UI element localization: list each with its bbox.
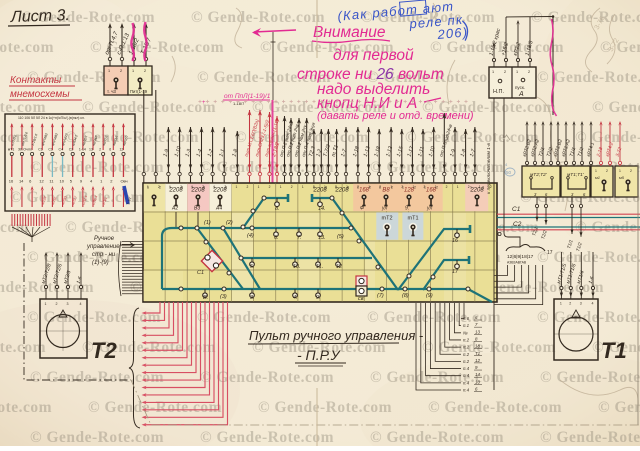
svg-text:© Gende-Rote.com: © Gende-Rote.com: [531, 9, 640, 26]
svg-text:© Gende-Rote.com: © Gende-Rote.com: [370, 429, 504, 446]
svg-text:А: А: [518, 91, 524, 98]
svg-text:1: 1: [346, 185, 348, 189]
svg-text:+: +: [202, 100, 206, 106]
svg-text:13.: 13.: [318, 235, 326, 241]
svg-text:2: 2: [424, 185, 426, 189]
svg-text:(5): (5): [337, 234, 344, 240]
svg-text:© Gende-Rote.com: © Gende-Rote.com: [537, 69, 640, 86]
svg-text:Внимание: Внимание: [313, 24, 386, 41]
svg-text:мнемосхемы: мнемосхемы: [10, 89, 70, 100]
svg-text:2: 2: [56, 302, 58, 306]
svg-text:7.: 7.: [297, 235, 302, 241]
svg-text:© Gende-Rote.com: © Gende-Rote.com: [367, 309, 501, 326]
svg-text:11.: 11.: [316, 264, 323, 270]
svg-text:св: св: [358, 296, 364, 302]
svg-text:2: 2: [313, 185, 315, 189]
svg-text:17: 17: [452, 269, 459, 275]
svg-text:1: 1: [516, 70, 518, 74]
svg-text:Т1: Т1: [475, 351, 481, 356]
svg-text:(1): (1): [204, 220, 211, 226]
svg-text:© Gende-Rote.com: © Gende-Rote.com: [30, 369, 164, 386]
svg-text:1: 1: [413, 185, 415, 189]
svg-text:1: 1: [132, 69, 134, 73]
svg-text:12: 12: [475, 358, 480, 363]
svg-text:пуск.: пуск.: [515, 85, 525, 90]
svg-text:1: 1: [619, 169, 621, 173]
svg-text:управление: управление: [86, 244, 120, 250]
svg-text:© Gende-Rote.com: © Gende-Rote.com: [27, 309, 161, 326]
svg-text:12: 12: [39, 179, 44, 184]
svg-text:С4: С4: [59, 148, 64, 152]
svg-text:© Gende-Rote.com: © Gende-Rote.com: [575, 129, 640, 146]
svg-text:стр - ни: стр - ни: [92, 252, 116, 258]
svg-text:Пульт ручного управления -: Пульт ручного управления -: [249, 328, 424, 343]
svg-text:© Gende-Rote.com: © Gende-Rote.com: [88, 399, 222, 416]
svg-text:1: 1: [595, 169, 597, 173]
svg-text:С1: С1: [38, 148, 43, 152]
svg-text:12: 12: [119, 148, 123, 152]
svg-text:1: 1: [368, 185, 370, 189]
svg-text:Овч: Овч: [120, 179, 127, 184]
svg-text:Ф: Ф: [360, 206, 364, 212]
svg-text:2: 2: [224, 185, 226, 189]
svg-text:п.4: п.4: [463, 380, 470, 385]
svg-text:В8: В8: [382, 188, 390, 194]
svg-text:1: 1: [470, 186, 472, 190]
svg-text:мТ1: мТ1: [8, 148, 15, 152]
svg-text:п.2: п.2: [463, 352, 470, 357]
svg-text:п.4: п.4: [463, 388, 470, 393]
svg-text:16: 16: [452, 238, 459, 244]
svg-text:© Gende-Rote.com: © Gende-Rote.com: [370, 369, 504, 386]
svg-text:13: 13: [89, 148, 93, 152]
svg-text:1: 1: [492, 70, 494, 74]
svg-text:© Gende-Rote.com: © Gende-Rote.com: [598, 399, 640, 416]
svg-text:2: 2: [504, 70, 506, 74]
svg-text:№: №: [463, 330, 468, 335]
svg-text:5.: 5.: [250, 264, 255, 270]
svg-text:(8): (8): [402, 293, 409, 299]
svg-text:4: 4: [80, 302, 82, 306]
svg-text:6: 6: [109, 148, 111, 152]
svg-text:© Gende-Rote.com: © Gende-Rote.com: [428, 399, 562, 416]
svg-text:© Gende-Rote.com: © Gende-Rote.com: [0, 339, 46, 356]
svg-text:50: 50: [506, 170, 512, 175]
svg-text:2: 2: [291, 185, 293, 189]
svg-text:1: 1: [302, 185, 304, 189]
svg-text:1: 1: [169, 185, 171, 189]
svg-text:В3: В3: [194, 206, 200, 212]
svg-text:10: 10: [60, 179, 65, 184]
svg-text:А2: А2: [171, 206, 178, 212]
svg-text:© Gende-Rote.com: © Gende-Rote.com: [200, 429, 334, 446]
svg-text:12: 12: [336, 264, 342, 270]
svg-text:4.: 4.: [293, 295, 298, 301]
svg-text:С1: С1: [512, 206, 521, 213]
svg-text:ул: ул: [426, 206, 432, 212]
svg-text:п.6: п.6: [463, 316, 470, 321]
svg-text:- П.Р.У: - П.Р.У: [297, 347, 342, 363]
svg-text:АЗВЗАВГАВ: АЗВЗАВГАВ: [507, 261, 527, 265]
svg-text:© Gende-Rote.com: © Gende-Rote.com: [592, 99, 640, 116]
svg-text:Т1: Т1: [601, 338, 627, 363]
svg-text:п.1: п.1: [463, 323, 470, 328]
svg-text:к переключателям 1-в: к переключателям 1-в: [486, 143, 492, 194]
svg-text:2: 2: [630, 169, 632, 173]
svg-text:2: 2: [446, 185, 448, 189]
svg-text:110 106 5Л 5Л 24 в 1к(+п)/сП/с: 110 106 5Л 5Л 24 в 1к(+п)/сП/с/(-)в(нкл)…: [18, 116, 85, 120]
svg-text:13: 13: [475, 329, 480, 334]
svg-text:16: 16: [9, 179, 14, 184]
svg-text:2: 2: [357, 185, 359, 189]
svg-text:1: 1: [191, 185, 193, 189]
svg-text:2: 2: [120, 69, 122, 73]
svg-text:т. ч3: т. ч3: [107, 89, 116, 94]
svg-text:Лист 3.: Лист 3.: [10, 7, 71, 26]
svg-text:© Gende-Rote.com: © Gende-Rote.com: [200, 369, 334, 386]
svg-text:1: 1: [213, 185, 215, 189]
svg-text:14: 14: [19, 179, 24, 184]
svg-text:14.: 14.: [318, 206, 326, 212]
svg-text:2: 2: [335, 185, 337, 189]
svg-text:2: 2: [401, 185, 403, 189]
svg-text:© Gende-Rote.com: © Gende-Rote.com: [405, 129, 539, 146]
svg-text:6.: 6.: [274, 235, 279, 241]
svg-text:2: 2: [144, 69, 146, 73]
svg-text:8.: 8.: [275, 206, 280, 212]
svg-text:Н.П.: Н.П.: [493, 89, 504, 95]
svg-text:м1: м1: [595, 175, 600, 180]
svg-text:1: 1: [560, 302, 562, 306]
svg-text:18: 18: [475, 344, 480, 349]
svg-text:1: 1: [236, 185, 238, 189]
svg-text:1-14: 1-14: [79, 148, 86, 152]
svg-text:1: 1: [324, 185, 326, 189]
svg-text:Ручное: Ручное: [94, 236, 115, 242]
svg-text:© Gende-Rote.com: © Gende-Rote.com: [258, 399, 392, 416]
svg-text:© Gende-Rote.com: © Gende-Rote.com: [540, 429, 640, 446]
svg-text:2: 2: [606, 169, 608, 173]
svg-text:для первой: для первой: [333, 47, 414, 64]
svg-text:© Gende-Rote.com: © Gende-Rote.com: [0, 399, 52, 416]
svg-text:2: 2: [99, 148, 101, 152]
svg-text:12|6|9|18|17: 12|6|9|18|17: [507, 254, 534, 260]
svg-text:(давать реле и отд. времени): (давать реле и отд. времени): [317, 110, 474, 122]
svg-text:1: 1: [45, 302, 47, 306]
svg-text:С1: С1: [48, 148, 53, 152]
svg-text:2: 2: [269, 185, 271, 189]
svg-text:1: 1: [435, 185, 437, 189]
svg-text:ул: ул: [381, 206, 387, 212]
svg-text:п.2: п.2: [463, 359, 470, 364]
svg-text:1: 1: [457, 185, 459, 189]
svg-text:9.: 9.: [405, 206, 409, 212]
svg-text:© Gende-Rote.com: © Gende-Rote.com: [537, 309, 640, 326]
svg-text:м5: м5: [619, 175, 625, 180]
svg-text:1: 1: [479, 185, 481, 189]
svg-text:© Gende-Rote.com: © Gende-Rote.com: [191, 9, 325, 26]
svg-text:В.: В.: [203, 295, 208, 301]
svg-text:206): 206): [436, 24, 469, 42]
svg-text:ЗЛ.Оч: ЗЛ.Оч: [18, 148, 28, 152]
svg-text:п.2: п.2: [463, 345, 470, 350]
svg-text:© Gende-Rote.com: © Gende-Rote.com: [0, 39, 54, 56]
svg-text:1: 1: [258, 185, 260, 189]
svg-text:(2): (2): [226, 220, 233, 226]
svg-text:(4): (4): [247, 233, 254, 239]
svg-text:2: 2: [202, 185, 204, 189]
svg-text:© Gende-Rote.com: © Gende-Rote.com: [197, 309, 331, 326]
svg-text:(7): (7): [377, 293, 384, 299]
svg-text:п.4: п.4: [463, 366, 470, 371]
svg-text:2: 2: [569, 302, 571, 306]
svg-text:mТ2: mТ2: [382, 216, 393, 222]
svg-text:3: 3: [67, 302, 69, 306]
svg-text:Т2: Т2: [91, 338, 117, 363]
svg-text:(1)-(9): (1)-(9): [92, 260, 109, 266]
svg-text:1: 1: [108, 69, 110, 73]
svg-text:9.: 9.: [316, 295, 321, 301]
svg-text:2: 2: [180, 185, 182, 189]
svg-text:п.2: п.2: [463, 337, 470, 342]
svg-text:17: 17: [547, 250, 553, 256]
svg-text:С1: С1: [197, 270, 204, 276]
svg-text:1: 1: [147, 185, 149, 189]
svg-text:(9): (9): [426, 293, 433, 299]
svg-text:Контакты: Контакты: [10, 75, 62, 86]
svg-text:2: 2: [528, 70, 530, 74]
svg-text:2: 2: [379, 185, 381, 189]
svg-text:© Gende-Rote.com: © Gende-Rote.com: [422, 339, 556, 356]
svg-text:3: 3: [580, 302, 582, 306]
svg-text:А4: А4: [215, 206, 222, 212]
svg-text:10.: 10.: [293, 264, 301, 270]
svg-text:(3): (3): [220, 294, 227, 300]
svg-text:3.: 3.: [250, 295, 255, 301]
svg-text:2: 2: [247, 185, 249, 189]
svg-text:mТ1: mТ1: [408, 216, 419, 222]
svg-text:10: 10: [475, 379, 480, 384]
svg-text:С2: С2: [69, 148, 74, 152]
svg-text:п.4: п.4: [463, 373, 470, 378]
svg-text:от ПпЛ(1-19)/1: от ПпЛ(1-19)/1: [224, 93, 271, 100]
svg-text:мТ1;Т1': мТ1;Т1': [567, 172, 585, 178]
svg-text:Пит(1-19: Пит(1-19: [130, 89, 148, 94]
svg-text:1: 1: [280, 185, 282, 189]
svg-text:мТ2;Т2': мТ2;Т2': [530, 172, 548, 178]
svg-text:2: 2: [468, 185, 470, 189]
svg-text:© Gende-Rote.com: © Gende-Rote.com: [540, 369, 640, 386]
svg-text:пл: пл: [28, 148, 32, 152]
svg-text:© Gende-Rote.com: © Gende-Rote.com: [30, 429, 164, 446]
svg-text:14: 14: [475, 372, 480, 377]
svg-text:2: 2: [158, 185, 160, 189]
svg-text:2: 2: [482, 186, 484, 190]
svg-text:4: 4: [592, 302, 594, 306]
svg-text:1: 1: [390, 185, 392, 189]
